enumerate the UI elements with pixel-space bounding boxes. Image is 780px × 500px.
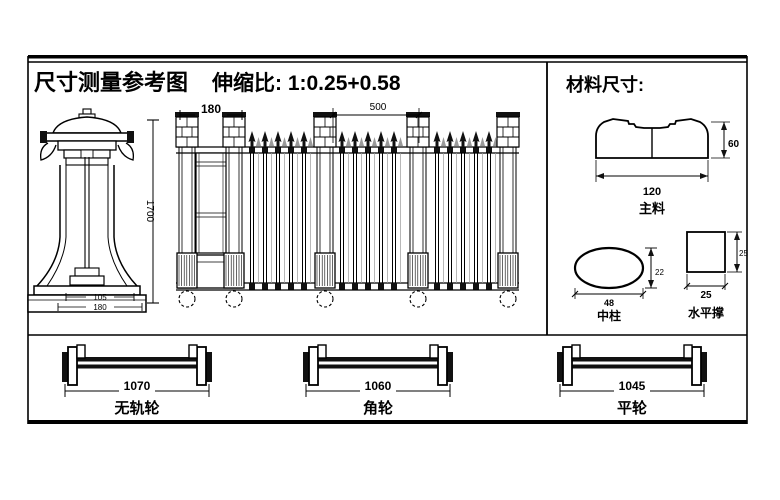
wheel-dim: 1070 [124,379,151,393]
oval-label: 中柱 [597,308,621,323]
main-profile-label: 主料 [639,201,665,216]
main-profile-height-dim: 60 [728,139,740,150]
wheel-label: 角轮 [363,399,393,417]
post-base-top-dim: 105 [93,293,107,302]
wheel-diagram: 1060角轮 [303,345,453,417]
material-sections-drawing: 60120主料2248中柱2525水平撑 [572,119,748,323]
oval-height-dim: 22 [655,268,664,277]
gate-bay-dim: 180 [201,102,221,116]
page-title: 尺寸测量参考图 [34,70,188,95]
wheel-dim: 1045 [619,379,646,393]
technical-drawing: 尺寸测量参考图 伸缩比: 1:0.25+0.58 材料尺寸: 105180170… [0,0,780,500]
titles: 尺寸测量参考图 伸缩比: 1:0.25+0.58 材料尺寸: [34,70,644,95]
gate-post-drawing: 1051801700 [28,109,159,312]
ratio-label: 伸缩比: 1:0.25+0.58 [211,71,401,95]
square-label: 水平撑 [688,305,724,320]
square-width-dim: 25 [700,290,712,301]
main-profile-width-dim: 120 [643,186,661,198]
oval-width-dim: 48 [604,298,614,308]
retractable-gate-drawing: 180500 [175,102,520,307]
post-base-bottom-dim: 180 [93,303,107,312]
gate-section-dim: 500 [370,102,387,113]
wheel-dim: 1060 [365,379,392,393]
wheel-diagram: 1045平轮 [557,345,707,417]
square-height-dim: 25 [739,249,748,258]
materials-title: 材料尺寸: [566,74,644,95]
drawing-sheet: 尺寸测量参考图 伸缩比: 1:0.25+0.58 材料尺寸: 105180170… [0,0,780,500]
wheel-label: 无轨轮 [113,399,159,417]
wheel-diagrams: 1070无轨轮1060角轮1045平轮 [62,345,707,417]
wheel-label: 平轮 [617,399,647,417]
wheel-diagram: 1070无轨轮 [62,345,212,417]
post-height-dim: 1700 [144,200,155,223]
